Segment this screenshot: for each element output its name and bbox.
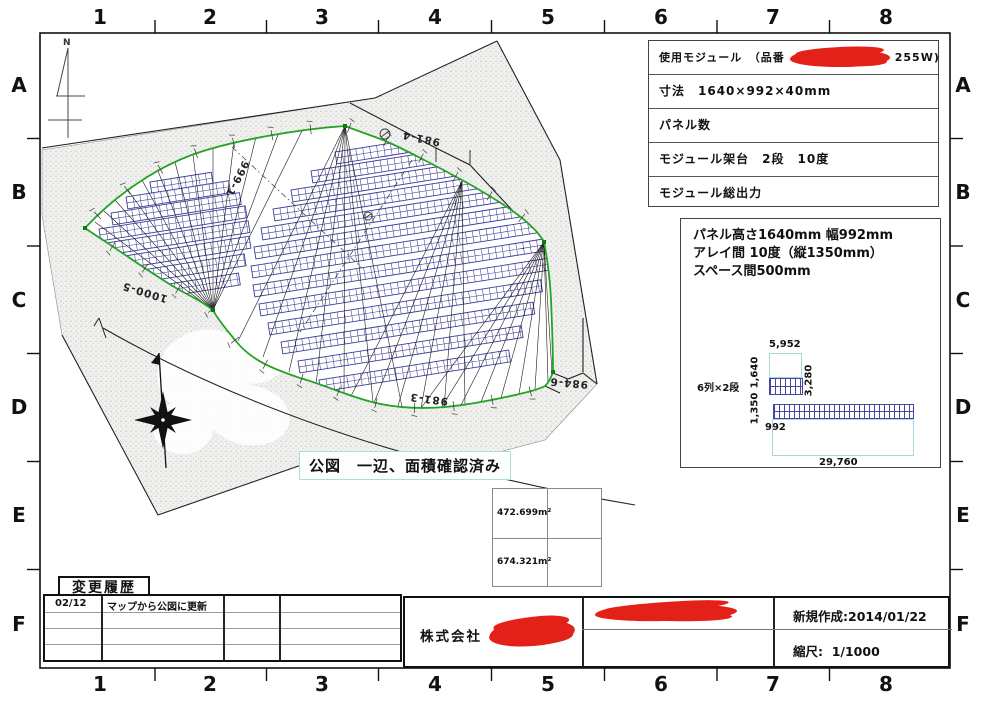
grid-row-B-left: B (5, 179, 33, 205)
grid-row-B-right: B (949, 179, 977, 205)
created-value: 2014/01/22 (848, 609, 927, 624)
spec-row-module: 使用モジュール （品番255W) (649, 41, 938, 75)
panel-detail-box: パネル高さ1640mm 幅992mm アレイ間 10度（縦1350mm） スペー… (680, 218, 941, 468)
company-prefix: 株式会社 (420, 625, 482, 645)
created-label: 新規作成: (793, 609, 848, 624)
grid-col-5-bottom: 5 (534, 671, 562, 697)
grid-col-7-top: 7 (759, 4, 787, 30)
grid-row-F-right: F (949, 611, 977, 637)
grid-row-D-left: D (5, 394, 33, 420)
history-desc: マップから公図に更新 (107, 598, 207, 613)
spec-module-prefix: 使用モジュール （品番 (659, 51, 785, 64)
area-value-1: 472.699m² (497, 508, 551, 518)
grid-col-1-top: 1 (86, 4, 114, 30)
grid-col-7-bottom: 7 (759, 671, 787, 697)
scale-value: 1/1000 (832, 644, 880, 659)
grid-col-3-bottom: 3 (308, 671, 336, 697)
array-config-label: 6列×2段 (697, 379, 739, 394)
grid-col-8-top: 8 (872, 4, 900, 30)
array-footprint-small (769, 353, 802, 378)
grid-col-3-top: 3 (308, 4, 336, 30)
grid-row-E-left: E (5, 502, 33, 528)
grid-row-A-right: A (949, 72, 977, 98)
module-spec-table: 使用モジュール （品番255W) 寸法 1640×992×40mm パネル数 モ… (648, 40, 939, 207)
scale-label: 縮尺: (793, 644, 823, 659)
detail-line2: アレイ間 10度（縦1350mm） (693, 245, 893, 263)
array-footprint-long (772, 419, 914, 456)
drawing-sheet: { "frame": { "columns": ["1","2","3","4"… (0, 0, 993, 702)
grid-col-6-bottom: 6 (647, 671, 675, 697)
north-label: N (63, 38, 71, 48)
panel-strip-long (773, 404, 914, 419)
history-title-tab: 変更履歴 (58, 576, 150, 596)
grid-col-8-bottom: 8 (872, 671, 900, 697)
north-arrow-icon (48, 48, 85, 138)
grid-row-F-left: F (5, 611, 33, 637)
grid-col-5-top: 5 (534, 4, 562, 30)
grid-col-2-bottom: 2 (196, 671, 224, 697)
map-note: 公図 一辺、面積確認済み (299, 451, 511, 480)
grid-row-D-right: D (949, 394, 977, 420)
grid-row-E-right: E (949, 502, 977, 528)
history-date: 02/12 (55, 598, 86, 609)
redacted-company-name (488, 617, 576, 649)
redacted-module-name (790, 49, 890, 67)
spec-module-suffix: 255W) (895, 51, 938, 64)
grid-col-4-top: 4 (421, 4, 449, 30)
grid-col-2-top: 2 (196, 4, 224, 30)
grid-row-C-left: C (5, 287, 33, 313)
title-block: 株式会社 新規作成:2014/01/22 縮尺: 1/1000 (403, 596, 950, 668)
spec-row-mount: モジュール架台 2段 10度 (649, 143, 938, 177)
detail-line1: パネル高さ1640mm 幅992mm (693, 227, 893, 245)
panel-strip-small (769, 378, 803, 395)
grid-row-C-right: C (949, 287, 977, 313)
redacted-project-name (595, 603, 737, 622)
spec-row-panel-count: パネル数 (649, 109, 938, 143)
area-table: 472.699m² 674.321m² (492, 488, 602, 587)
dim-total-label: 29,760 (819, 457, 858, 468)
spec-row-dimensions: 寸法 1640×992×40mm (649, 75, 938, 109)
grid-col-6-top: 6 (647, 4, 675, 30)
dim-pitch-label: 1,350 (749, 393, 760, 425)
spec-row-total-output: モジュール総出力 (649, 177, 938, 210)
dim-top-label: 5,952 (769, 339, 801, 350)
detail-line3: スペース間500mm (693, 263, 893, 281)
grid-col-1-bottom: 1 (86, 671, 114, 697)
dim-height-label: 1,640 (749, 357, 760, 389)
grid-col-4-bottom: 4 (421, 671, 449, 697)
area-value-2: 674.321m² (497, 557, 551, 567)
dim-right-label: 3,280 (803, 365, 814, 397)
grid-row-A-left: A (5, 72, 33, 98)
change-history-table: 02/12 マップから公図に更新 (43, 594, 402, 662)
